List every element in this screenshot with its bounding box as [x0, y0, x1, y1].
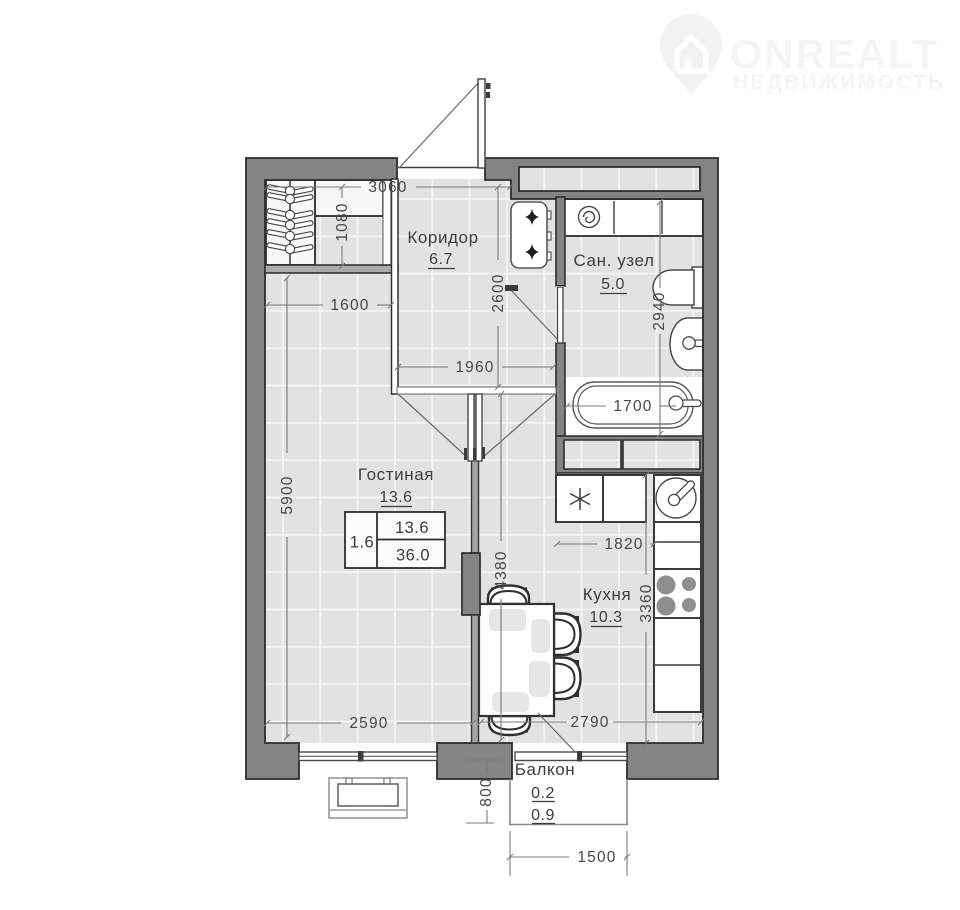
- svg-text:Гостиная: Гостиная: [358, 465, 434, 484]
- svg-text:2940: 2940: [651, 291, 668, 330]
- svg-text:2590: 2590: [349, 715, 388, 732]
- svg-text:1960: 1960: [455, 359, 494, 376]
- svg-text:5.0: 5.0: [601, 276, 625, 293]
- svg-text:0.2: 0.2: [531, 785, 555, 802]
- svg-text:1700: 1700: [613, 398, 652, 415]
- svg-text:2790: 2790: [570, 714, 609, 731]
- svg-text:6.7: 6.7: [429, 251, 453, 268]
- svg-text:2600: 2600: [490, 273, 507, 312]
- svg-text:1500: 1500: [577, 849, 616, 866]
- svg-text:3360: 3360: [638, 583, 655, 622]
- svg-text:НЕДВИЖИМОСТЬ: НЕДВИЖИМОСТЬ: [733, 71, 945, 94]
- svg-text:Балкон: Балкон: [515, 760, 576, 779]
- svg-text:5900: 5900: [279, 475, 296, 514]
- svg-text:800: 800: [478, 777, 495, 806]
- svg-text:1080: 1080: [334, 202, 351, 241]
- svg-text:0.9: 0.9: [531, 807, 555, 824]
- svg-text:Кухня: Кухня: [583, 585, 632, 604]
- svg-text:1820: 1820: [604, 536, 643, 553]
- svg-text:4380: 4380: [493, 550, 510, 589]
- svg-text:Сан. узел: Сан. узел: [573, 251, 654, 270]
- svg-text:1600: 1600: [330, 297, 369, 314]
- svg-text:3060: 3060: [368, 179, 407, 196]
- svg-text:Коридор: Коридор: [407, 228, 478, 247]
- svg-text:1.6: 1.6: [350, 534, 374, 552]
- svg-text:13.6: 13.6: [379, 489, 412, 506]
- svg-text:10.3: 10.3: [589, 609, 622, 626]
- svg-text:13.6: 13.6: [395, 519, 429, 537]
- svg-text:36.0: 36.0: [396, 547, 430, 565]
